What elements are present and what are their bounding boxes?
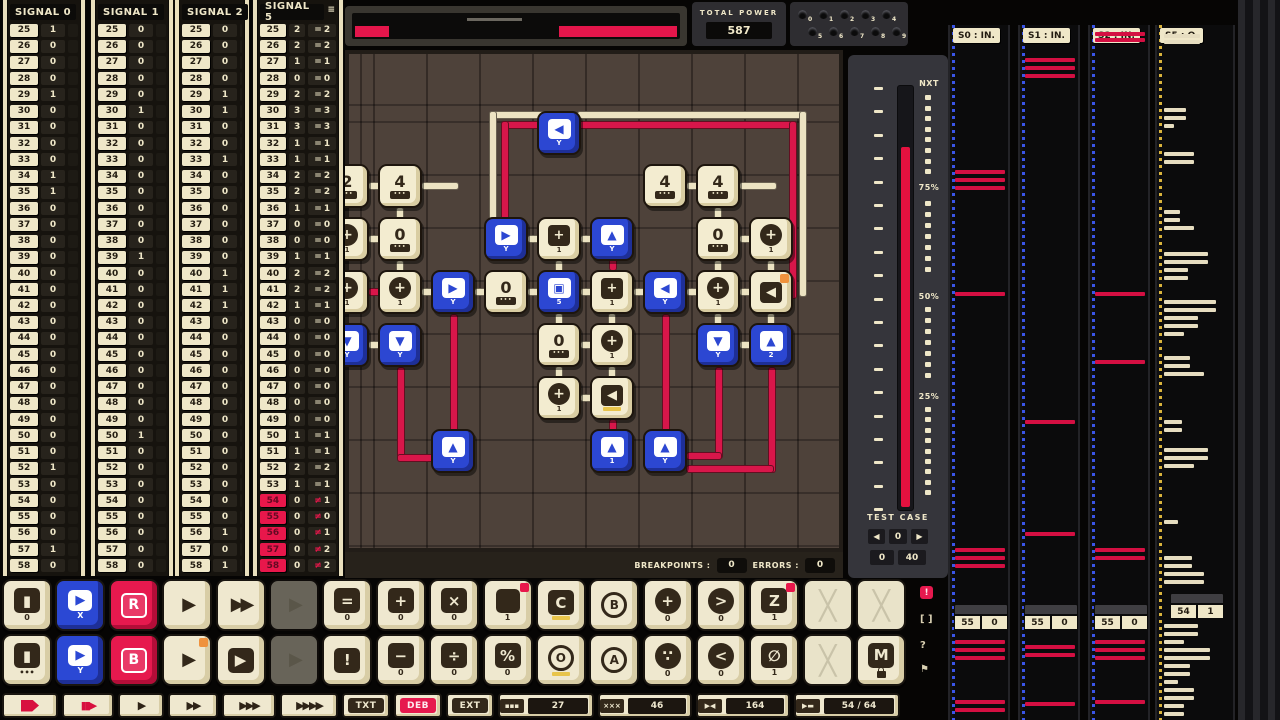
timeline-readout: 550 xyxy=(1094,615,1148,630)
signal-row-tail xyxy=(156,202,166,215)
signal-value: 0 xyxy=(213,381,237,394)
signal-row: 301 xyxy=(98,104,166,118)
signal-index: 48 xyxy=(182,397,210,410)
patch-socket[interactable] xyxy=(829,27,838,36)
timeline-bar xyxy=(1164,580,1204,584)
signal-value: 1 xyxy=(289,478,306,491)
signal-index: 26 xyxy=(98,40,126,53)
signal-value: 1 xyxy=(129,429,153,442)
readout-step: 55 xyxy=(1094,615,1121,630)
patch-socket[interactable] xyxy=(871,27,880,36)
signal-row-tail xyxy=(68,153,78,166)
wire-segment xyxy=(686,452,722,460)
signal-value: 0 xyxy=(289,218,306,231)
module-icon: + xyxy=(707,277,729,299)
module-sub-label: 1 xyxy=(610,458,615,465)
counter-icon: ××× xyxy=(600,699,624,713)
signal-value: 0 xyxy=(129,267,153,280)
module-corner-badge xyxy=(780,274,789,283)
meter-step-tick xyxy=(925,212,931,217)
signal-value: 0 xyxy=(129,364,153,377)
signal-row: 351 xyxy=(10,185,78,199)
operator-icon: C xyxy=(548,590,574,615)
panel-rail-left xyxy=(2,0,8,576)
play-button[interactable]: ▶ xyxy=(118,693,164,718)
signal-value: 0 xyxy=(41,283,65,296)
signal-value: 0 xyxy=(213,202,237,215)
test-case-next-button[interactable]: ▶ xyxy=(911,529,928,544)
signal-row-tail xyxy=(156,283,166,296)
readout-value: 0 xyxy=(1121,615,1148,630)
signal-row: 460 xyxy=(10,364,78,378)
meter-step-tick xyxy=(925,148,931,153)
circuit-module[interactable]: +1 xyxy=(696,270,740,314)
signal-index: 27 xyxy=(182,56,210,69)
stop-flag-button[interactable] xyxy=(2,693,58,718)
timeline-bar xyxy=(1095,360,1145,364)
palette-button[interactable]: 1 xyxy=(483,579,533,631)
signal-value: 1 xyxy=(41,186,65,199)
signal-row: 530 xyxy=(98,478,166,492)
circuit-module[interactable]: +1 xyxy=(345,217,369,261)
signal-row-tail xyxy=(156,543,166,556)
readout-value: 0 xyxy=(981,615,1008,630)
timeline-strip[interactable]: S0 : IN.550 xyxy=(948,25,1010,720)
signal-row: 540 xyxy=(98,494,166,508)
signal-row: 330 xyxy=(10,153,78,167)
signal-row-tail xyxy=(240,543,242,556)
signal-value: 2 xyxy=(289,170,306,183)
module-highlight-bar xyxy=(603,407,621,411)
timeline-bar xyxy=(1164,332,1184,336)
palette-button[interactable]: ×0 xyxy=(429,579,479,631)
timeline-bar xyxy=(1095,556,1145,560)
signal-index: 46 xyxy=(260,364,286,377)
signal-row: 410 xyxy=(98,283,166,297)
signal-row: 402=2 xyxy=(260,267,336,281)
palette-button[interactable]: ▶X xyxy=(55,579,105,631)
signal-row: 310 xyxy=(98,120,166,134)
meter-tick xyxy=(874,274,883,277)
signal-value: 0 xyxy=(129,332,153,345)
signal-value: 1 xyxy=(213,299,237,312)
patch-socket[interactable] xyxy=(798,10,807,19)
operator-icon: − xyxy=(388,643,414,668)
meter-step-tick xyxy=(925,256,931,261)
signal-index: 39 xyxy=(10,251,38,264)
circuit-board[interactable]: ◀Y2•••4•••4•••4•••+10•••▶Y+1▲Y0•••+1+1+1… xyxy=(345,50,843,552)
signal-value: 0 xyxy=(213,121,237,134)
timeline-bar xyxy=(1164,632,1198,636)
module-sub-label: 1 xyxy=(345,300,349,307)
signal-row: 561 xyxy=(182,526,242,540)
signal-index: 32 xyxy=(260,137,286,150)
meter-step-tick xyxy=(925,407,931,412)
patch-socket[interactable] xyxy=(892,27,901,36)
meter-step-tick xyxy=(925,159,931,164)
signal-row: 550 xyxy=(182,510,242,524)
signal-expected: =1 xyxy=(308,478,336,491)
module-sub-label: Y xyxy=(503,246,508,253)
circuit-module[interactable]: ◀Y xyxy=(643,270,687,314)
signal-index: 51 xyxy=(98,446,126,459)
signal-row-tail xyxy=(240,348,242,361)
scrubber-track[interactable] xyxy=(352,13,680,39)
palette-button[interactable]: ÷0 xyxy=(429,634,479,686)
signal-expected: =2 xyxy=(308,24,336,37)
module-icon: ◀ xyxy=(760,282,782,303)
circuit-module[interactable]: 0••• xyxy=(378,217,422,261)
module-sub-label: Y xyxy=(345,352,350,359)
signal-rows: 2512602702802913003103203303413513603703… xyxy=(10,23,78,573)
signal-row: 270 xyxy=(10,55,78,69)
signal-index: 25 xyxy=(260,24,286,37)
signal-row-tail xyxy=(156,494,166,507)
wire-segment xyxy=(715,367,723,459)
timeline-bar xyxy=(1095,548,1145,552)
signal-value: 1 xyxy=(289,153,306,166)
timeline-bar xyxy=(1164,210,1180,214)
signal-value: 0 xyxy=(129,72,153,85)
timeline-bar xyxy=(1164,218,1180,222)
ext-button[interactable]: EXT xyxy=(446,693,494,718)
palette-button[interactable]: +0 xyxy=(643,579,693,631)
button-sub-label: 1 xyxy=(772,669,778,677)
patch-socket[interactable] xyxy=(882,10,891,19)
palette-button[interactable]: ▶ xyxy=(216,634,266,686)
signal-rows: 2502602702802913013103203313403503603703… xyxy=(182,23,242,573)
brackets-icon[interactable]: [ ] xyxy=(920,614,933,625)
palette-button[interactable]: +0 xyxy=(376,579,426,631)
signal-row: 280 xyxy=(182,72,242,86)
signal-value: 0 xyxy=(129,494,153,507)
button-sub-label: 0 xyxy=(665,615,671,623)
signal-value: 0 xyxy=(129,413,153,426)
signal-index: 29 xyxy=(98,88,126,101)
palette-button[interactable]: ∅1 xyxy=(749,634,799,686)
patch-panel: 0123456789 xyxy=(790,2,908,46)
palette-button[interactable]: ∵0 xyxy=(643,634,693,686)
signal-value: 0 xyxy=(289,332,306,345)
signal-row-tail xyxy=(156,462,166,475)
signal-row: 570 xyxy=(182,543,242,557)
ff4-button[interactable]: ▶▶▶▶ xyxy=(280,693,338,718)
palette-button[interactable]: =0 xyxy=(322,579,372,631)
circuit-module[interactable]: 4••• xyxy=(696,164,740,208)
lock-icon xyxy=(877,671,886,678)
help-icon[interactable]: ? xyxy=(920,640,926,651)
module-sub-label: 1 xyxy=(769,247,774,254)
timeline-bar xyxy=(1164,356,1190,360)
palette-button[interactable]: O xyxy=(536,634,586,686)
button-sub-label: 0 xyxy=(665,670,671,678)
signal-value: 1 xyxy=(41,543,65,556)
signal-row-tail xyxy=(68,413,78,426)
signal-expected: =1 xyxy=(308,137,336,150)
signal-row-tail xyxy=(68,88,78,101)
signal-row: 570≠2 xyxy=(260,543,336,557)
timeline-bar xyxy=(955,556,1005,560)
patch-socket[interactable] xyxy=(850,27,859,36)
signal-row-tail xyxy=(156,186,166,199)
patch-socket[interactable] xyxy=(808,27,817,36)
signal-row-tail xyxy=(240,40,242,53)
palette-button[interactable]: C xyxy=(536,579,586,631)
palette-button: ╳ xyxy=(803,634,853,686)
circuit-module[interactable]: 0••• xyxy=(696,217,740,261)
signal-row-tail xyxy=(156,348,166,361)
signal-index: 47 xyxy=(98,381,126,394)
signal-index: 36 xyxy=(260,202,286,215)
timeline-strip[interactable]: S1 : IN.550 xyxy=(1018,25,1080,720)
circuit-module[interactable]: ◀Y xyxy=(537,111,581,155)
palette-button[interactable]: >0 xyxy=(696,579,746,631)
signal-value: 0 xyxy=(213,170,237,183)
ff3-button[interactable]: ▶▶▶ xyxy=(222,693,276,718)
test-case-range-start: 0 xyxy=(870,550,894,565)
circuit-module[interactable]: 2••• xyxy=(345,164,369,208)
circuit-module[interactable]: +1 xyxy=(590,323,634,367)
meter-tick xyxy=(874,415,883,418)
palette-button[interactable]: A xyxy=(589,634,639,686)
wires-counter[interactable]: ×××46 xyxy=(598,693,692,718)
palette-button[interactable]: ▮0 xyxy=(2,579,52,631)
signal-index: 45 xyxy=(10,348,38,361)
debug-button[interactable]: DEB xyxy=(394,693,442,718)
timeline-bar xyxy=(1164,564,1192,568)
signal-value: 0 xyxy=(129,40,153,53)
signal-index: 40 xyxy=(10,267,38,280)
circuit-module[interactable]: ▲1 xyxy=(590,429,634,473)
palette-button[interactable]: R xyxy=(109,579,159,631)
circuit-module[interactable]: 4••• xyxy=(643,164,687,208)
meter-step-tick xyxy=(925,417,931,422)
timeline-scrubber[interactable] xyxy=(345,6,687,46)
step-button[interactable]: ▮▮▶ xyxy=(62,693,114,718)
patch-socket-number: 3 xyxy=(871,16,875,23)
meter-step-tick xyxy=(925,116,931,121)
counter-icon: ▶◀ xyxy=(698,699,722,713)
timeline-readout: 550 xyxy=(1024,615,1078,630)
signal-row-tail xyxy=(156,413,166,426)
circuit-module[interactable]: 0••• xyxy=(537,323,581,367)
palette-button[interactable]: ! xyxy=(322,634,372,686)
signal-expected: =1 xyxy=(308,446,336,459)
circuit-module[interactable]: +1 xyxy=(590,270,634,314)
module-sub-label: 1 xyxy=(716,300,721,307)
timeline-strip[interactable]: S5 : O.541 xyxy=(1155,25,1235,720)
power-counter[interactable]: ▶◀164 xyxy=(696,693,790,718)
signal-value: 0 xyxy=(41,332,65,345)
signal-index: 53 xyxy=(98,478,126,491)
signal-index: 41 xyxy=(10,283,38,296)
circuit-module[interactable]: 0••• xyxy=(484,270,528,314)
patch-socket[interactable] xyxy=(840,10,849,19)
signal-value: 1 xyxy=(41,88,65,101)
signal-row-tail xyxy=(240,511,242,524)
signal-index: 44 xyxy=(260,332,286,345)
cells-counter[interactable]: ▪▪▪27 xyxy=(498,693,594,718)
circuit-module[interactable]: ▼Y xyxy=(696,323,740,367)
transport-badge: DEB xyxy=(400,698,436,713)
signal-value: 0 xyxy=(213,511,237,524)
signal-index: 53 xyxy=(260,478,286,491)
signal-row: 330 xyxy=(98,153,166,167)
palette-button[interactable]: ▶ xyxy=(162,634,212,686)
signal-row: 350 xyxy=(182,185,242,199)
signal-expected: =3 xyxy=(308,105,336,118)
signal-index: 54 xyxy=(98,494,126,507)
signal-row-tail xyxy=(68,137,78,150)
circuit-module[interactable]: ▶Y xyxy=(431,270,475,314)
module-sub-label: 5 xyxy=(557,299,562,306)
signal-row-tail xyxy=(156,429,166,442)
palette-button[interactable]: ▮••• xyxy=(2,634,52,686)
signal-row: 250 xyxy=(182,23,242,37)
panel-collapse-icon[interactable]: ≡ xyxy=(327,6,335,15)
circuit-module[interactable]: +1 xyxy=(537,376,581,420)
circuit-module[interactable]: 4••• xyxy=(378,164,422,208)
palette-button[interactable]: M xyxy=(856,634,906,686)
palette-button[interactable]: Z1 xyxy=(749,579,799,631)
signal-row: 580 xyxy=(98,559,166,573)
patch-socket[interactable] xyxy=(861,10,870,19)
signal-index: 58 xyxy=(260,559,286,572)
signal-row-tail xyxy=(68,105,78,118)
signal-index: 56 xyxy=(182,527,210,540)
timeline-strip[interactable]: S2 : IN.550 xyxy=(1088,25,1150,720)
signal-value: 0 xyxy=(289,348,306,361)
signal-index: 55 xyxy=(98,511,126,524)
transport-glyph-icon: ▶ xyxy=(138,700,144,712)
timeline-bar xyxy=(1164,680,1178,684)
operator-icon: × xyxy=(441,588,467,613)
signal-value: 2 xyxy=(289,283,306,296)
palette-button: ╳ xyxy=(856,579,906,631)
txt-button[interactable]: TXT xyxy=(342,693,390,718)
signal-index: 34 xyxy=(182,170,210,183)
steps-counter[interactable]: ▶▬54 / 64 xyxy=(794,693,900,718)
signal-row-tail xyxy=(68,267,78,280)
palette-button[interactable]: %0 xyxy=(483,634,533,686)
signal-row: 580≠2 xyxy=(260,559,336,573)
circuit-module[interactable]: ◀ xyxy=(749,270,793,314)
signal-row: 540≠1 xyxy=(260,494,336,508)
test-case-prev-button[interactable]: ◀ xyxy=(868,529,885,544)
signal-value: 1 xyxy=(289,56,306,69)
timeline-bar xyxy=(1164,420,1182,424)
module-icon: ▼ xyxy=(345,331,359,351)
meter-step-tick xyxy=(925,127,931,132)
signal-row-tail xyxy=(240,446,242,459)
signal-row: 470 xyxy=(10,380,78,394)
circuit-module[interactable]: +1 xyxy=(537,217,581,261)
signal-row: 450 xyxy=(182,348,242,362)
circuit-module[interactable]: +1 xyxy=(345,270,369,314)
palette-button[interactable]: <0 xyxy=(696,634,746,686)
breakpoints-label: BREAKPOINTS : xyxy=(634,561,710,570)
palette-button[interactable]: ▶▶ xyxy=(216,579,266,631)
circuit-module[interactable]: ◀ xyxy=(590,376,634,420)
signal-value: 0 xyxy=(41,218,65,231)
timeline-bar xyxy=(1095,38,1145,42)
module-sub-label: ••• xyxy=(708,191,728,199)
test-case-label: TEST CASE xyxy=(848,513,948,522)
circuit-module[interactable]: ▼Y xyxy=(378,323,422,367)
timeline-bar xyxy=(1095,32,1145,36)
palette-button[interactable]: ▶ xyxy=(162,579,212,631)
panel-rail-left xyxy=(252,0,258,576)
module-icon: ▲ xyxy=(601,225,624,245)
transport-badge: EXT xyxy=(452,698,488,713)
palette-button[interactable]: ▶ xyxy=(269,634,319,686)
signal-value: 0 xyxy=(213,186,237,199)
timeline-bar xyxy=(1025,74,1075,78)
timeline-readout-frame xyxy=(1170,593,1224,604)
circuit-module[interactable]: ▲Y xyxy=(431,429,475,473)
meter-step-tick xyxy=(925,329,931,334)
signal-expected: =2 xyxy=(308,283,336,296)
signal-row: 340 xyxy=(98,169,166,183)
timeline-bar xyxy=(1164,226,1194,230)
module-number: 4 xyxy=(659,174,670,190)
module-sub-label: Y xyxy=(450,458,455,465)
signal-expected: =0 xyxy=(308,364,336,377)
palette-button[interactable]: ▶ xyxy=(269,579,319,631)
signal-row-tail xyxy=(156,40,166,53)
circuit-module[interactable]: ▣5 xyxy=(537,270,581,314)
signal-value: 0 xyxy=(41,527,65,540)
palette-button[interactable]: −0 xyxy=(376,634,426,686)
signal-row: 470 xyxy=(98,380,166,394)
signal-value: 0 xyxy=(129,397,153,410)
signal-row: 450=0 xyxy=(260,348,336,362)
circuit-module[interactable]: ▶Y xyxy=(484,217,528,261)
signal-value: 0 xyxy=(41,235,65,248)
signal-row: 401 xyxy=(182,267,242,281)
circuit-module[interactable]: +1 xyxy=(378,270,422,314)
palette-button[interactable]: ▶Y xyxy=(55,634,105,686)
signal-row: 260 xyxy=(10,39,78,53)
signal-row: 501 xyxy=(98,429,166,443)
signal-row: 320 xyxy=(10,137,78,151)
wire-segment xyxy=(421,182,459,190)
signal-value: 0 xyxy=(289,364,306,377)
timeline-bar xyxy=(1095,292,1145,296)
signal-expected: =0 xyxy=(308,332,336,345)
ff2-button[interactable]: ▶▶ xyxy=(168,693,218,718)
circuit-module[interactable]: ▼Y xyxy=(345,323,369,367)
circuit-module[interactable]: ▲Y xyxy=(643,429,687,473)
alert-icon[interactable]: ! xyxy=(920,586,933,599)
timeline-bar xyxy=(1025,420,1075,424)
scrubber-error-right xyxy=(559,26,677,37)
module-sub-label: Y xyxy=(662,458,667,465)
letter-icon: B xyxy=(121,648,147,673)
circuit-module[interactable]: +1 xyxy=(749,217,793,261)
palette-button[interactable]: B xyxy=(589,579,639,631)
patch-socket[interactable] xyxy=(819,10,828,19)
signal-expected: =0 xyxy=(308,316,336,329)
signal-index: 58 xyxy=(98,559,126,572)
circuit-module[interactable]: ▲2 xyxy=(749,323,793,367)
flag-icon[interactable]: ⚑ xyxy=(920,664,929,675)
signal-row: 440 xyxy=(98,331,166,345)
meter-step-tick xyxy=(925,428,931,433)
signal-index: 47 xyxy=(182,381,210,394)
palette-button[interactable]: B xyxy=(109,634,159,686)
circuit-module[interactable]: ▲Y xyxy=(590,217,634,261)
